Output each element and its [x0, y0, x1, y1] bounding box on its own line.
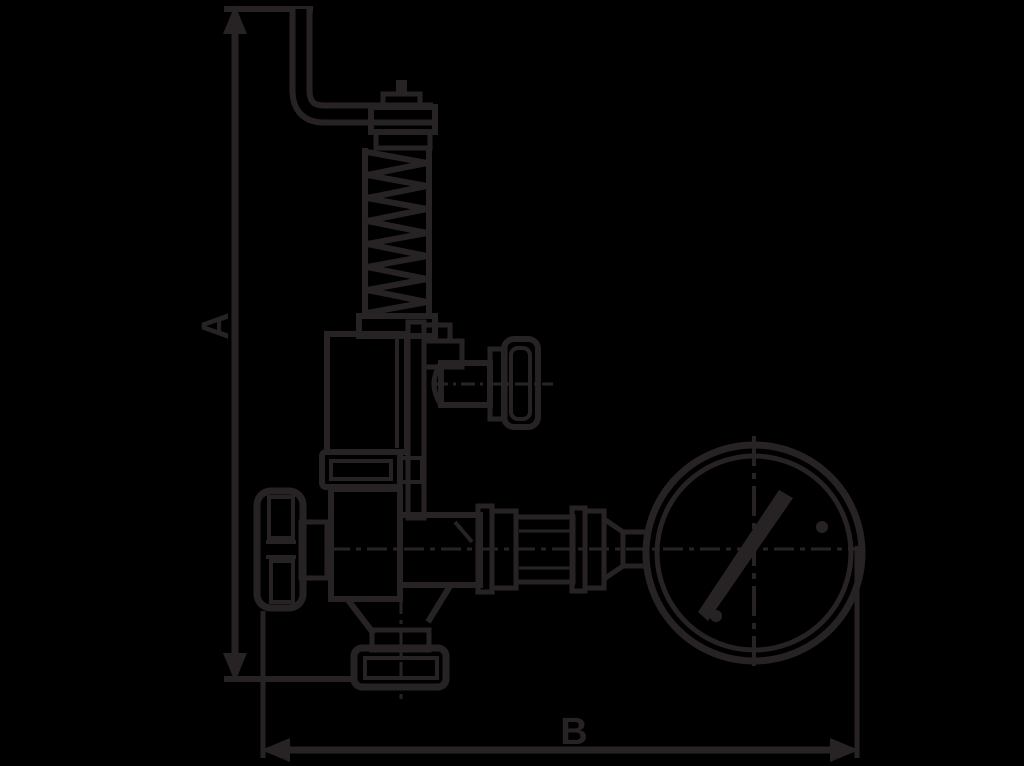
lift-lever: [301, 9, 433, 114]
dimension-b-label: B: [560, 711, 587, 753]
gauge-needle: [698, 490, 793, 621]
gauge-screw-dot-right: [816, 521, 828, 533]
pressure-gauge: [646, 436, 862, 670]
gauge-screw-dot-left: [710, 610, 722, 622]
test-knob: [434, 339, 553, 427]
valve-dimensional-drawing: A B: [0, 0, 1024, 766]
valve-assembly: [257, 9, 864, 699]
spring-housing: [359, 148, 435, 336]
handwheel: [257, 491, 327, 608]
spring-coils: [367, 152, 427, 313]
dimension-a-label: A: [195, 312, 237, 339]
drawing-canvas: A B: [0, 0, 1024, 766]
valve-main-body: [331, 489, 480, 650]
